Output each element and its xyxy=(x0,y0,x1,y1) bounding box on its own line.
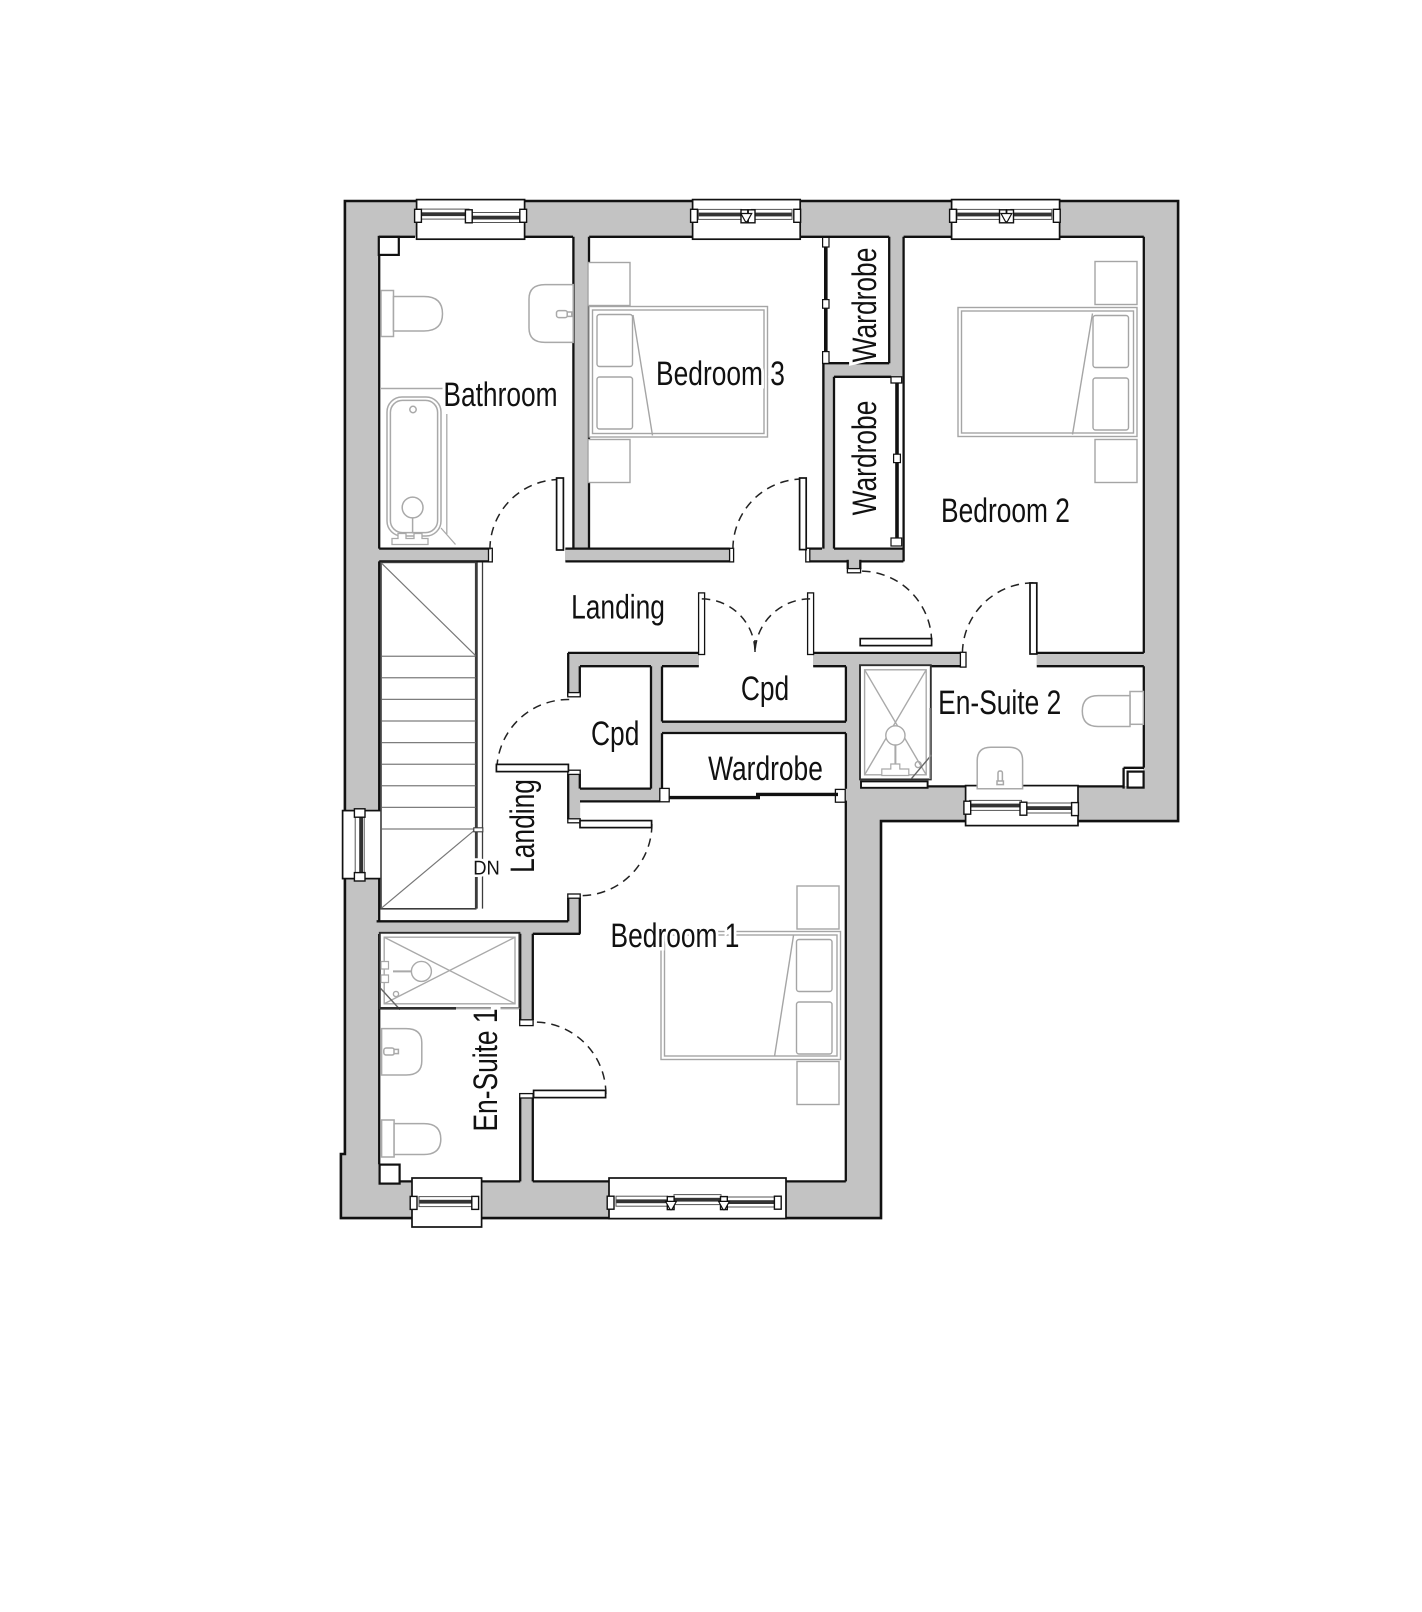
svg-text:Bedroom 1: Bedroom 1 xyxy=(611,917,740,955)
svg-text:Cpd: Cpd xyxy=(591,715,639,753)
svg-text:Cpd: Cpd xyxy=(741,670,789,708)
svg-text:DN: DN xyxy=(473,858,500,880)
svg-text:Bedroom 2: Bedroom 2 xyxy=(941,492,1070,530)
svg-text:Wardrobe: Wardrobe xyxy=(846,248,884,363)
svg-text:En-Suite 1: En-Suite 1 xyxy=(467,1008,505,1131)
svg-text:Landing: Landing xyxy=(504,779,542,873)
svg-text:Bedroom 3: Bedroom 3 xyxy=(656,355,785,393)
svg-text:Wardrobe: Wardrobe xyxy=(708,750,823,788)
svg-text:Landing: Landing xyxy=(571,588,665,626)
svg-text:Bathroom: Bathroom xyxy=(443,376,557,414)
svg-text:En-Suite 2: En-Suite 2 xyxy=(938,684,1061,722)
svg-text:Wardrobe: Wardrobe xyxy=(846,401,884,516)
